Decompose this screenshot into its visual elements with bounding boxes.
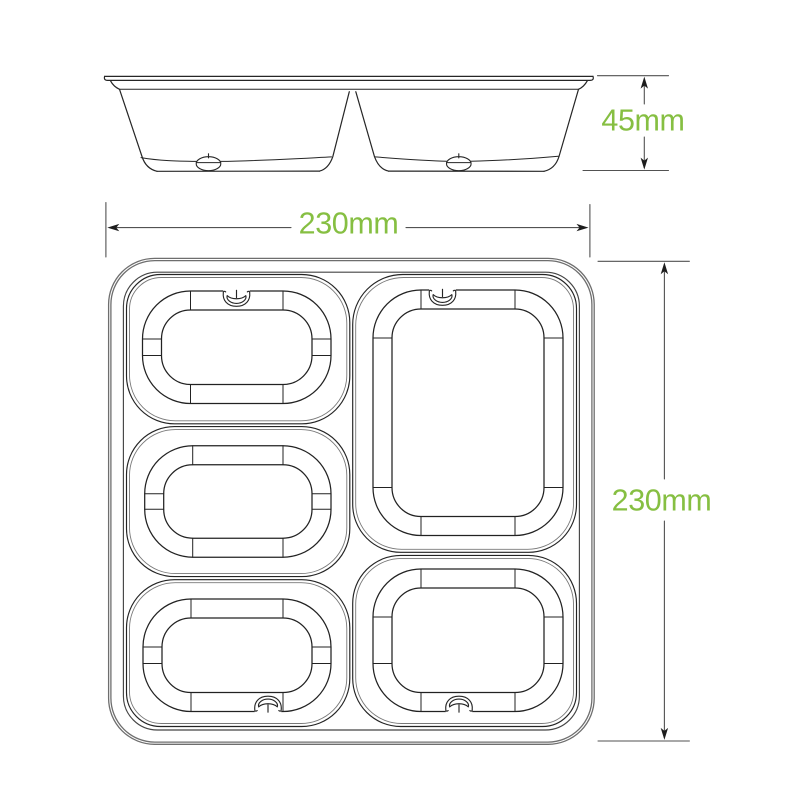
svg-text:230mm: 230mm: [612, 484, 712, 518]
svg-text:230mm: 230mm: [299, 207, 399, 241]
svg-text:45mm: 45mm: [601, 104, 684, 138]
